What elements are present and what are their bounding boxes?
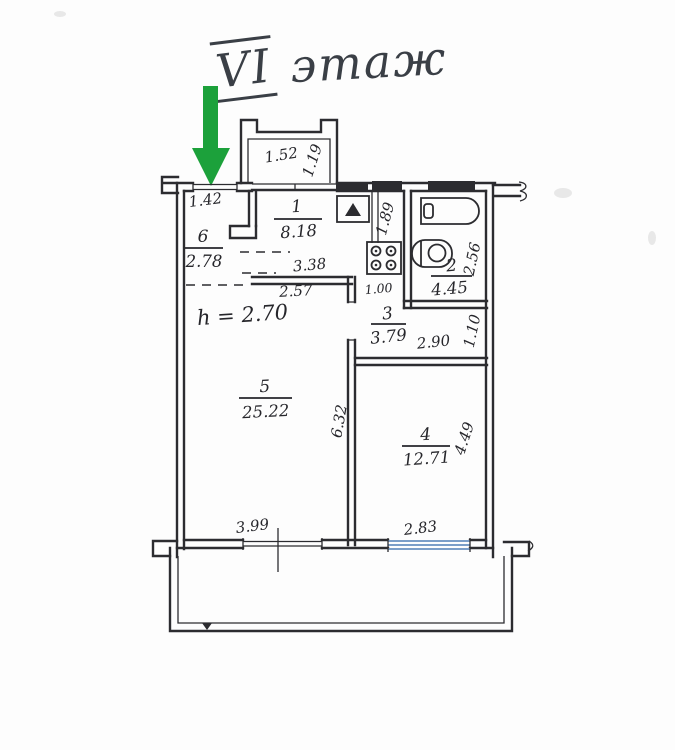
dim-balcony-width: 1.52 bbox=[263, 144, 299, 167]
room-4-area: 12.71 bbox=[402, 447, 450, 469]
dim-door-width: 1.00 bbox=[364, 280, 393, 297]
room-1-label: 1 8.18 bbox=[274, 197, 322, 243]
dimensions: 1.52 1.19 1.42 3.38 2.57 1.89 2.56 1.00 … bbox=[188, 141, 485, 539]
sink-icon bbox=[337, 196, 369, 222]
loggia bbox=[153, 541, 533, 631]
dim-hall-depth: 1.10 bbox=[460, 312, 485, 349]
room-3-number: 3 bbox=[381, 304, 394, 325]
room-3-label: 3 3.79 bbox=[369, 304, 408, 348]
dim-bedroom-width: 2.83 bbox=[402, 517, 438, 539]
dim-bathroom-depth: 2.56 bbox=[460, 240, 485, 278]
dim-entry-width: 1.42 bbox=[188, 189, 223, 211]
dim-hall-width: 2.90 bbox=[415, 331, 452, 353]
ceiling-height-note: h = 2.70 bbox=[196, 300, 289, 330]
bathtub-icon bbox=[421, 198, 479, 224]
room-5-area: 25.22 bbox=[241, 401, 290, 422]
scanned-floor-plan-page: VIэтаж bbox=[0, 0, 675, 750]
window-room4 bbox=[388, 538, 470, 552]
dim-living-width: 3.99 bbox=[235, 515, 271, 537]
down-arrow-icon bbox=[192, 86, 230, 186]
floor-plan-drawing: 1 8.18 2 4.45 3 3.79 4 12.71 5 25.22 6 2… bbox=[0, 0, 675, 750]
room-5-number: 5 bbox=[259, 377, 271, 398]
dim-balcony-depth: 1.19 bbox=[299, 141, 327, 179]
dim-bedroom-depth: 4.49 bbox=[450, 419, 478, 458]
dim-kitchen-width: 3.38 bbox=[292, 255, 327, 276]
room-2-number: 2 bbox=[444, 256, 458, 277]
room-1-number: 1 bbox=[291, 197, 303, 218]
room-2-area: 4.45 bbox=[429, 277, 468, 299]
room-3-area: 3.79 bbox=[369, 325, 408, 348]
room-6-area: 2.78 bbox=[185, 252, 223, 271]
room-6-label: 6 2.78 bbox=[185, 227, 223, 271]
room-5-label: 5 25.22 bbox=[239, 377, 292, 423]
stove-icon bbox=[367, 242, 401, 274]
dim-niche-depth: 1.89 bbox=[372, 200, 398, 237]
dim-corridor-width: 2.57 bbox=[278, 281, 314, 301]
room-1-area: 8.18 bbox=[280, 221, 318, 243]
room-4-label: 4 12.71 bbox=[402, 425, 451, 470]
room-4-number: 4 bbox=[419, 425, 432, 446]
room-6-number: 6 bbox=[198, 227, 209, 247]
